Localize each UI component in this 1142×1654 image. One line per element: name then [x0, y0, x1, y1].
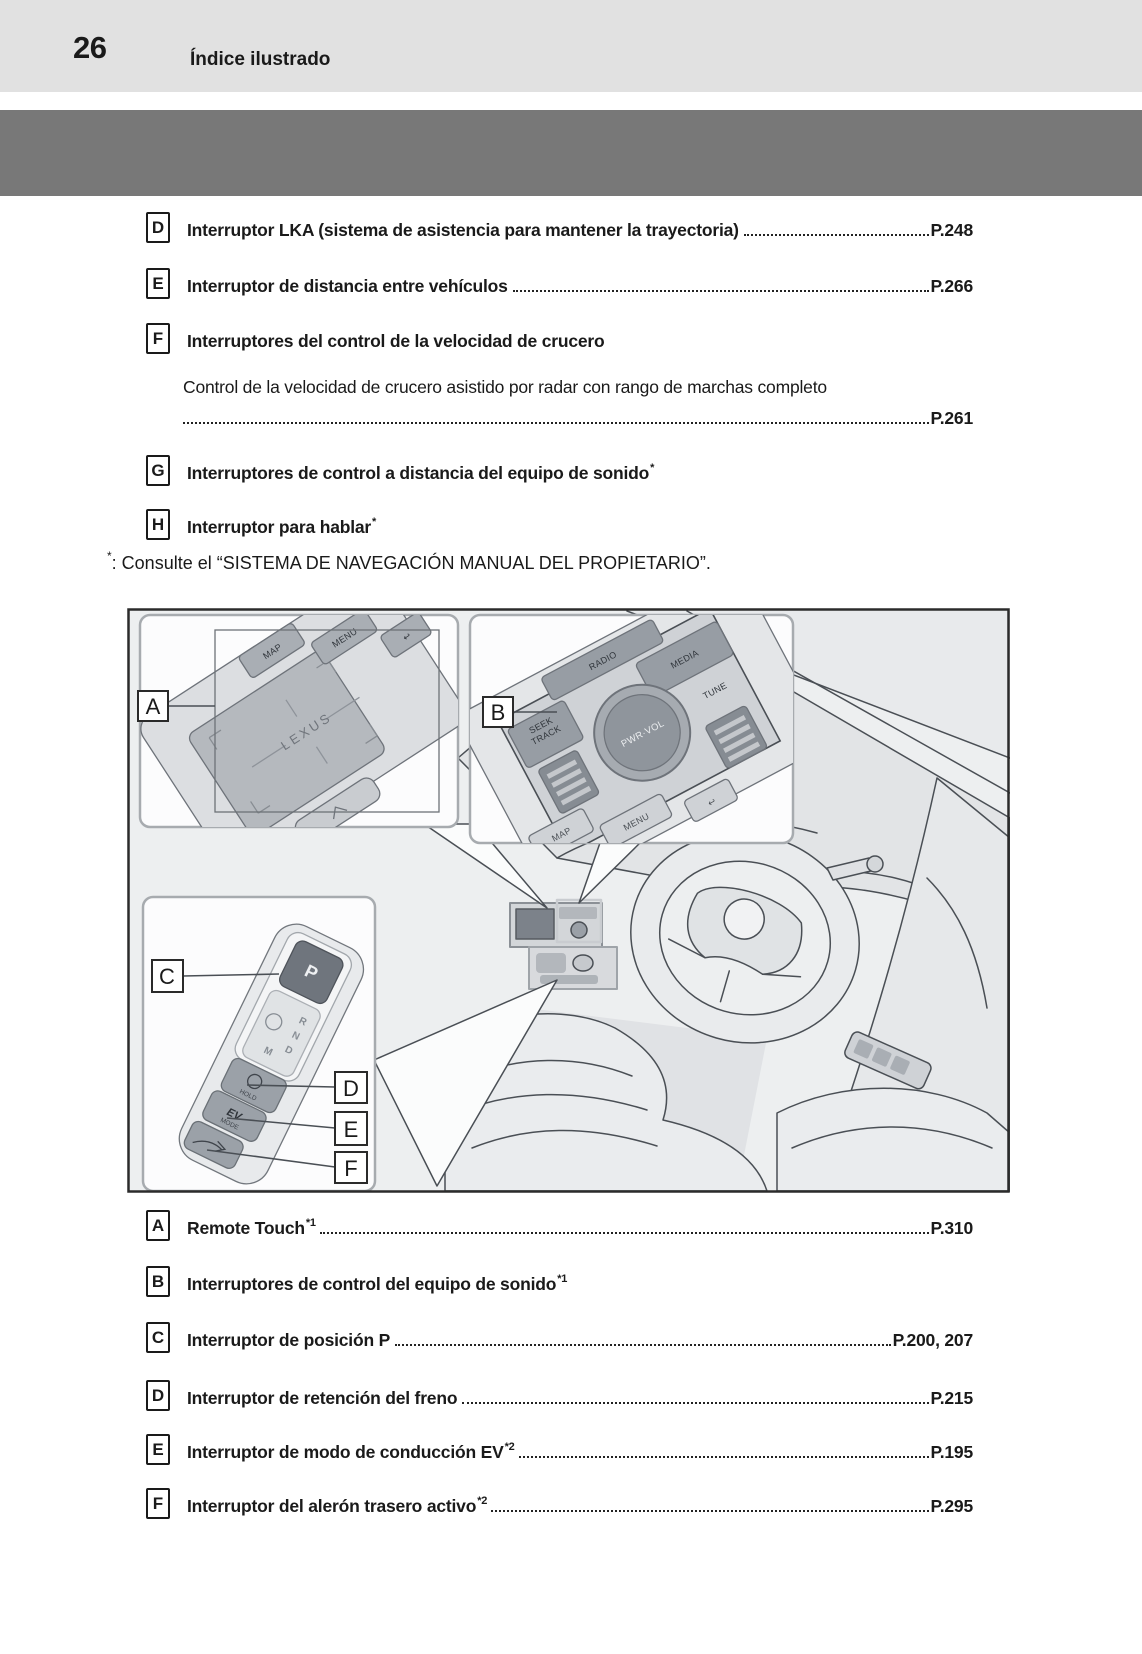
section-title: Índice ilustrado: [190, 49, 330, 71]
item-key-badge: G: [146, 455, 170, 486]
section-banner: [0, 110, 1142, 196]
item-label-text: Interruptor de distancia entre vehículos: [187, 276, 508, 296]
page-header: 26 Índice ilustrado: [0, 0, 1142, 92]
item-footnote-marker: *1: [306, 1217, 316, 1229]
list-item: A Remote Touch*1 P.310: [146, 1210, 973, 1242]
page-reference: P.261: [931, 404, 973, 432]
item-label-text: Interruptor de posición P: [187, 1330, 390, 1350]
item-label: Remote Touch*1: [187, 1214, 316, 1242]
item-footnote-marker: *1: [557, 1273, 567, 1285]
item-label-text: Interruptores del control de la velocida…: [187, 331, 605, 351]
callout-label-d: D: [343, 1076, 359, 1101]
callout-label-a: A: [146, 694, 161, 719]
item-label-text: Interruptor LKA (sistema de asistencia p…: [187, 220, 739, 240]
list-item: H Interruptor para hablar*: [146, 509, 973, 541]
list-item: G Interruptores de control a distancia d…: [146, 455, 973, 487]
page-reference: P.195: [931, 1438, 973, 1466]
list-item: D Interruptor LKA (sistema de asistencia…: [146, 212, 973, 244]
item-key-badge: E: [146, 268, 170, 299]
list-item: C Interruptor de posición P P.200, 207: [146, 1322, 973, 1354]
item-label-text: Interruptores de control a distancia del…: [187, 463, 649, 483]
item-key-badge: D: [146, 1380, 170, 1411]
callout-label-f: F: [344, 1156, 357, 1181]
item-label-text: Remote Touch: [187, 1218, 305, 1238]
dot-leader: [320, 1232, 929, 1234]
dot-leader: [491, 1510, 928, 1512]
list-item: B Interruptores de control del equipo de…: [146, 1266, 973, 1298]
footnote-text: : Consulte el “SISTEMA DE NAVEGACIÓN MAN…: [112, 553, 711, 573]
item-label: Interruptores de control a distancia del…: [187, 459, 654, 487]
dot-leader: [183, 422, 929, 424]
dot-leader: [744, 234, 929, 236]
list-item: F Interruptor del alerón trasero activo*…: [146, 1488, 973, 1520]
callout-label-e: E: [344, 1117, 359, 1142]
item-key-badge: D: [146, 212, 170, 243]
item-label-text: Interruptores de control del equipo de s…: [187, 1274, 556, 1294]
item-key-badge: F: [146, 323, 170, 354]
item-label: Interruptor de posición P: [187, 1326, 391, 1354]
callout-label-b: B: [491, 700, 506, 725]
page-reference: P.215: [931, 1384, 973, 1412]
item-label: Interruptor para hablar*: [187, 513, 376, 541]
item-key-badge: C: [146, 1322, 170, 1353]
item-label: Interruptor de modo de conducción EV*2: [187, 1438, 515, 1466]
item-label-text: Interruptor de retención del freno: [187, 1388, 457, 1408]
item-footnote-marker: *2: [477, 1495, 487, 1507]
page-reference: P.266: [931, 272, 973, 300]
item-label-text: Interruptor del alerón trasero activo: [187, 1496, 476, 1516]
dot-leader: [513, 290, 929, 292]
item-label: Interruptores del control de la velocida…: [187, 327, 606, 355]
dot-leader: [462, 1402, 928, 1404]
item-footnote-marker: *2: [505, 1441, 515, 1453]
list-item: E Interruptor de modo de conducción EV*2…: [146, 1434, 973, 1466]
item-label: Interruptor de distancia entre vehículos: [187, 272, 509, 300]
sub-item-text: Control de la velocidad de crucero asist…: [183, 374, 973, 400]
list-item: E Interruptor de distancia entre vehícul…: [146, 268, 973, 300]
interior-illustration: LEXUS MAP MENU ↩ A RADIO: [127, 608, 1010, 1193]
item-label-text: Interruptor para hablar: [187, 517, 371, 537]
page-number: 26: [73, 30, 106, 66]
item-footnote-marker: *: [650, 462, 654, 474]
page-reference: P.310: [931, 1214, 973, 1242]
item-key-badge: F: [146, 1488, 170, 1519]
item-label: Interruptor de retención del freno: [187, 1384, 458, 1412]
list-item: F Interruptores del control de la veloci…: [146, 323, 973, 355]
page-reference: P.200, 207: [893, 1326, 973, 1354]
item-key-badge: H: [146, 509, 170, 540]
item-footnote-marker: *: [372, 516, 376, 528]
sub-item-ref-row: P.261: [183, 406, 973, 432]
page-reference: P.248: [931, 216, 973, 244]
list-item: D Interruptor de retención del freno P.2…: [146, 1380, 973, 1412]
item-label-text: Interruptor de modo de conducción EV: [187, 1442, 504, 1462]
dot-leader: [395, 1344, 891, 1346]
callout-label-c: C: [159, 964, 175, 989]
inset-shift-console: P R N D M HOLD EV MODE C D: [143, 897, 375, 1192]
item-key-badge: E: [146, 1434, 170, 1465]
item-key-badge: A: [146, 1210, 170, 1241]
item-label: Interruptor del alerón trasero activo*2: [187, 1492, 487, 1520]
dot-leader: [519, 1456, 929, 1458]
item-key-badge: B: [146, 1266, 170, 1297]
footnote: *: Consulte el “SISTEMA DE NAVEGACIÓN MA…: [106, 548, 711, 578]
item-label: Interruptor LKA (sistema de asistencia p…: [187, 216, 740, 244]
page-reference: P.295: [931, 1492, 973, 1520]
item-label: Interruptores de control del equipo de s…: [187, 1270, 567, 1298]
